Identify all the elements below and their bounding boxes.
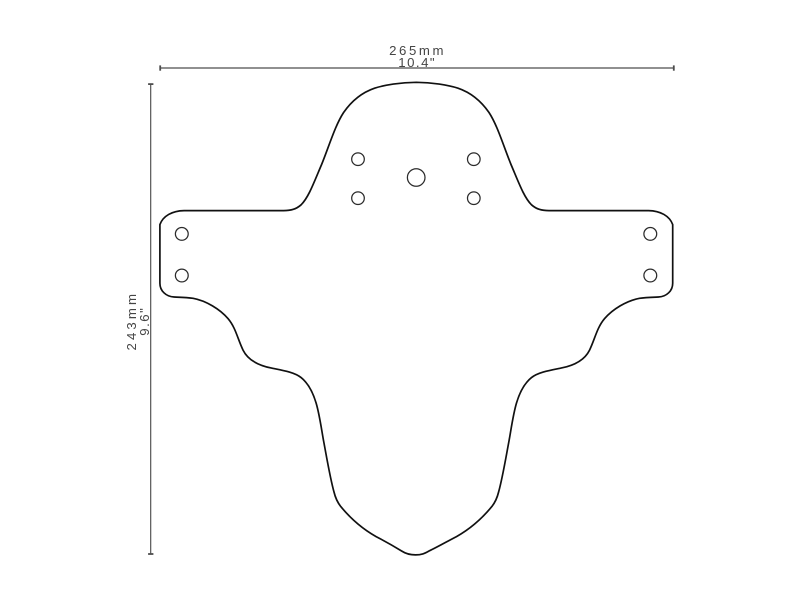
svg-text:10.4": 10.4"	[398, 55, 436, 70]
svg-text:9.6": 9.6"	[137, 307, 152, 336]
